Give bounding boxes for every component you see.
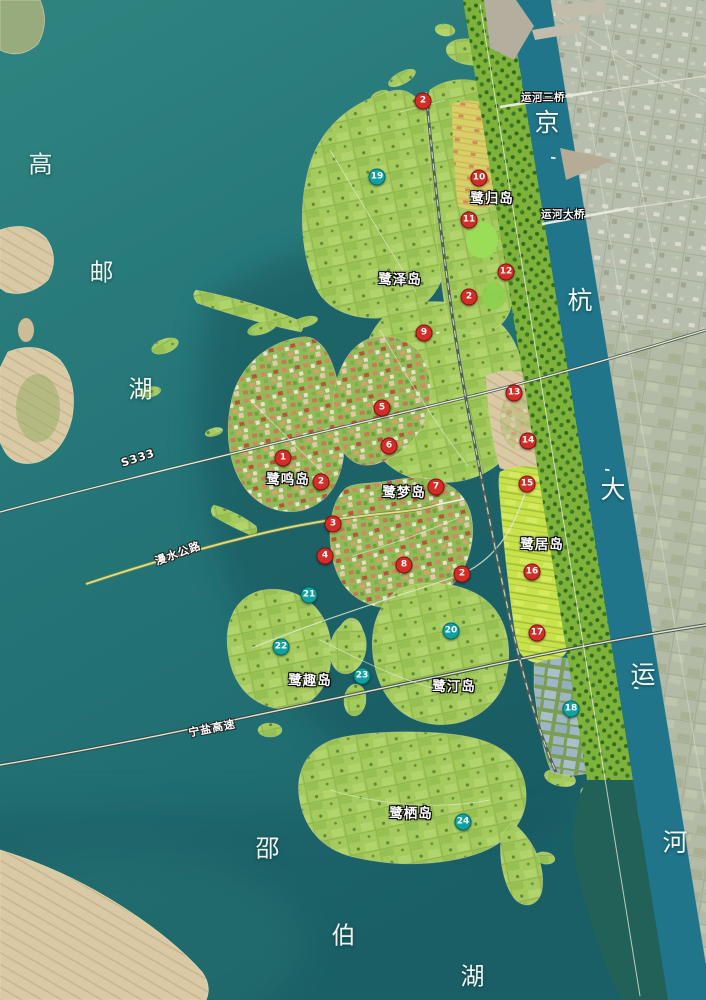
- island-label-0: 鹭归岛: [470, 187, 514, 207]
- canal-name-char-0: 京: [534, 103, 559, 139]
- map-labels: 高邮湖邵伯湖京杭大运河鹭归岛鹭泽岛鹭鸣岛鹭梦岛鹭居岛鹭趣岛鹭汀岛鹭栖岛运河三桥运…: [0, 0, 706, 1000]
- map-marker-red-2-4: 2: [454, 566, 471, 583]
- map-marker-red-1-0: 1: [275, 450, 292, 467]
- road-label-2: 宁盐高速: [187, 716, 237, 741]
- map-marker-teal-22-4: 22: [273, 639, 290, 656]
- canal-name-char-1: 杭: [567, 281, 592, 317]
- map-marker-red-2-1: 2: [415, 93, 432, 110]
- map-marker-red-2-2: 2: [461, 289, 478, 306]
- map-marker-red-4-6: 4: [317, 548, 334, 565]
- canal-name-char-2: 大: [600, 470, 625, 506]
- map-marker-teal-23-5: 23: [354, 668, 371, 685]
- lake-name-char-shaobo-0: 邵: [256, 829, 281, 864]
- lake-name-char-gaoyou-2: 湖: [129, 370, 154, 405]
- map-marker-red-11-13: 11: [461, 212, 478, 229]
- map-marker-red-15-17: 15: [519, 476, 536, 493]
- bridge-label-1: 运河大桥: [541, 207, 585, 222]
- island-label-6: 鹭汀岛: [432, 675, 476, 695]
- island-label-3: 鹭梦岛: [382, 481, 426, 501]
- map-marker-teal-24-6: 24: [455, 814, 472, 831]
- island-label-7: 鹭栖岛: [389, 802, 433, 822]
- map-marker-red-7-9: 7: [428, 479, 445, 496]
- island-label-4: 鹭居岛: [520, 533, 564, 553]
- map-marker-red-10-12: 10: [471, 170, 488, 187]
- map-marker-red-16-18: 16: [524, 564, 541, 581]
- canal-name-char-3: 运: [630, 655, 655, 691]
- road-label-1: 漫水公路: [153, 537, 204, 568]
- map-marker-red-14-16: 14: [520, 433, 537, 450]
- canal-name-char-4: 河: [662, 823, 687, 859]
- bridge-label-0: 运河三桥: [521, 90, 565, 105]
- lake-name-char-gaoyou-0: 高: [29, 145, 54, 180]
- road-label-0: S333: [119, 446, 156, 469]
- map-marker-teal-19-1: 19: [369, 169, 386, 186]
- lake-name-char-shaobo-1: 伯: [332, 916, 357, 951]
- map-marker-teal-20-2: 20: [443, 623, 460, 640]
- map-canvas: 高邮湖邵伯湖京杭大运河鹭归岛鹭泽岛鹭鸣岛鹭梦岛鹭居岛鹭趣岛鹭汀岛鹭栖岛运河三桥运…: [0, 0, 706, 1000]
- map-marker-red-12-14: 12: [498, 264, 515, 281]
- map-marker-red-8-10: 8: [396, 557, 413, 574]
- map-marker-red-13-15: 13: [506, 385, 523, 402]
- map-marker-teal-18-0: 18: [563, 701, 580, 718]
- map-marker-red-2-3: 2: [313, 474, 330, 491]
- map-marker-red-6-8: 6: [381, 438, 398, 455]
- map-marker-teal-21-3: 21: [301, 587, 318, 604]
- map-marker-red-3-5: 3: [325, 516, 342, 533]
- lake-name-char-shaobo-2: 湖: [461, 957, 486, 992]
- island-label-1: 鹭泽岛: [378, 268, 422, 288]
- island-label-2: 鹭鸣岛: [266, 468, 310, 488]
- lake-name-char-gaoyou-1: 邮: [90, 253, 115, 288]
- island-label-5: 鹭趣岛: [288, 669, 332, 689]
- map-marker-red-9-11: 9: [416, 325, 433, 342]
- map-marker-red-17-19: 17: [529, 625, 546, 642]
- map-marker-red-5-7: 5: [374, 400, 391, 417]
